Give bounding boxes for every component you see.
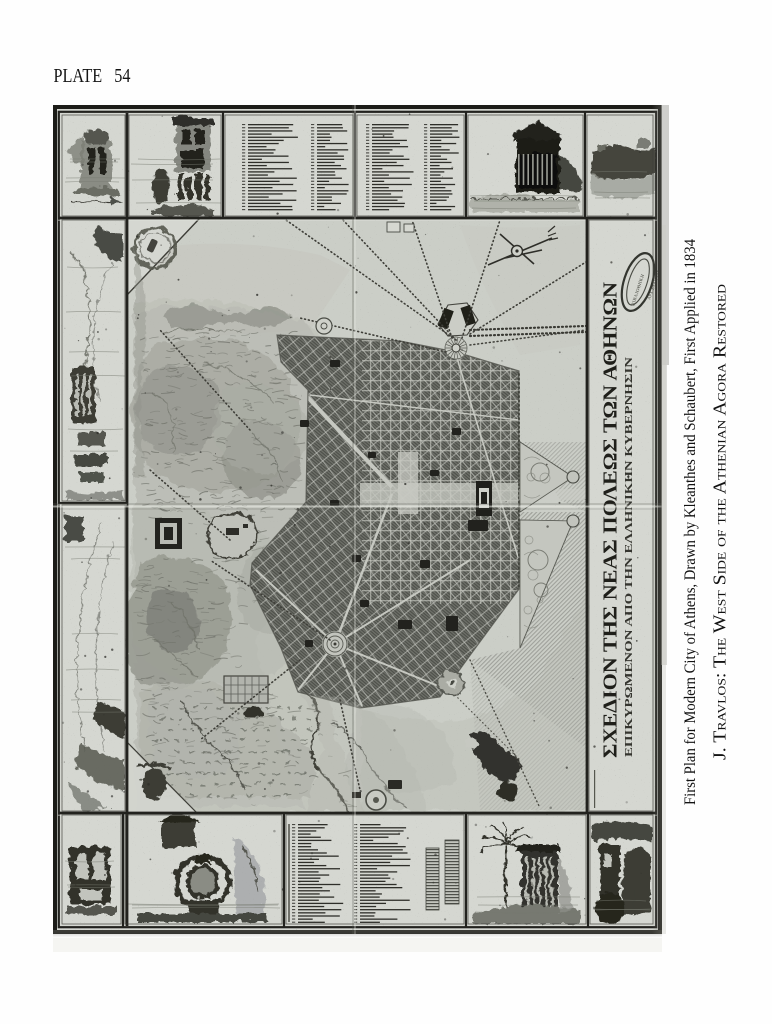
svg-text:J. Travlos: The West Side of t: J. Travlos: The West Side of the Athenia… bbox=[710, 284, 730, 760]
svg-text:ΕΠΙΚΥΡΩΜΕΝΟΝ ΑΠΟ ΤΗΝ ΕΛΛΗΝΙΚΗΝ: ΕΠΙΚΥΡΩΜΕΝΟΝ ΑΠΟ ΤΗΝ ΕΛΛΗΝΙΚΗΝ ΚΥΒΕΡΝΗΣΙ… bbox=[624, 356, 635, 757]
svg-text:PLATE 54: PLATE 54 bbox=[54, 65, 131, 87]
svg-text:ΣΧΕΔΙΟΝ ΤΗΣ ΝΕΑΣ ΠΟΛΕΩΣ ΤΩΝ ΑΘ: ΣΧΕΔΙΟΝ ΤΗΣ ΝΕΑΣ ΠΟΛΕΩΣ ΤΩΝ ΑΘΗΝΩΝ bbox=[600, 282, 622, 758]
svg-text:First Plan for Modern City of: First Plan for Modern City of Athens, Dr… bbox=[682, 239, 699, 805]
